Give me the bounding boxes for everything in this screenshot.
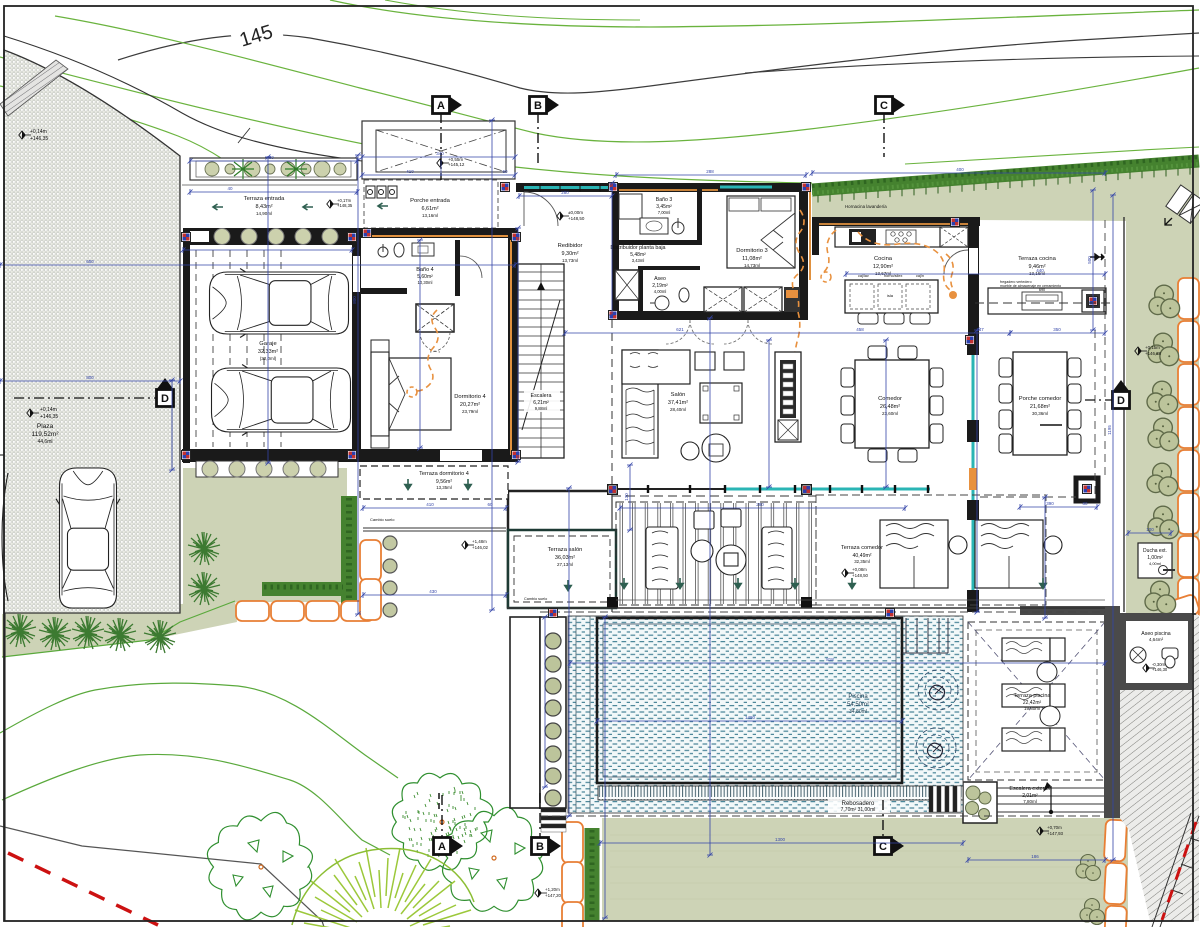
svg-text:818: 818 (826, 657, 834, 662)
svg-text:3,43ml: 3,43ml (632, 258, 645, 263)
svg-text:60: 60 (502, 169, 508, 174)
svg-text:430: 430 (429, 589, 437, 594)
svg-text:+147,20: +147,20 (545, 893, 562, 898)
svg-text:21,68m²: 21,68m² (1030, 404, 1050, 410)
svg-text:186: 186 (1031, 854, 1039, 859)
svg-text:Ducha ext.: Ducha ext. (1143, 548, 1167, 554)
svg-text:44,6ml: 44,6ml (37, 439, 52, 445)
svg-text:Cambio suelo: Cambio suelo (524, 597, 547, 601)
svg-text:400: 400 (956, 167, 964, 172)
svg-text:Porche comedor: Porche comedor (1019, 396, 1062, 402)
svg-text:32,35ml: 32,35ml (854, 559, 870, 564)
svg-text:Baño 4: Baño 4 (416, 267, 433, 273)
svg-text:80: 80 (1082, 501, 1088, 506)
svg-text:C: C (880, 100, 888, 112)
svg-text:A: A (437, 100, 445, 112)
svg-text:caj/n: caj/n (916, 274, 924, 278)
svg-text:B: B (536, 841, 544, 853)
svg-text:100: 100 (1146, 527, 1154, 532)
svg-text:20,27m²: 20,27m² (460, 402, 480, 408)
svg-text:621: 621 (676, 327, 684, 332)
svg-text:9,88ml: 9,88ml (535, 406, 548, 411)
svg-text:Salón: Salón (671, 392, 686, 398)
svg-text:13,73ml: 13,73ml (562, 258, 578, 263)
svg-text:mueble de almacenaje en cerram: mueble de almacenaje en cerramiento (1000, 284, 1061, 288)
svg-text:+145,12: +145,12 (448, 162, 465, 167)
svg-text:+1,48m: +1,48m (472, 539, 487, 544)
svg-text:4,00ml: 4,00ml (654, 289, 667, 294)
svg-text:36,03m²: 36,03m² (555, 555, 575, 561)
svg-text:+146,30: +146,30 (1152, 667, 1168, 672)
svg-text:1300: 1300 (775, 837, 786, 842)
svg-text:37,41m²: 37,41m² (668, 400, 688, 406)
svg-text:+146,35: +146,35 (40, 414, 58, 420)
svg-text:12,90m²: 12,90m² (873, 264, 893, 270)
svg-text:1480: 1480 (745, 715, 756, 720)
svg-text:458: 458 (856, 327, 864, 332)
svg-text:+146,35: +146,35 (30, 136, 48, 142)
svg-text:11,08m²: 11,08m² (742, 256, 762, 262)
svg-text:±0,00m: ±0,00m (568, 210, 583, 215)
svg-text:horno/silex: horno/silex (884, 274, 902, 278)
svg-text:119,52m²: 119,52m² (32, 431, 60, 438)
svg-text:D: D (1117, 395, 1125, 407)
svg-text:Cambio suelo: Cambio suelo (370, 517, 395, 522)
svg-text:390: 390 (1046, 501, 1054, 506)
svg-text:Terraza entrada: Terraza entrada (244, 196, 285, 202)
svg-text:D: D (161, 393, 169, 405)
svg-text:Redibidor: Redibidor (558, 243, 583, 249)
svg-text:+1,20m: +1,20m (545, 887, 560, 892)
svg-text:Terraza cocina: Terraza cocina (1018, 256, 1056, 262)
svg-text:Baño 3: Baño 3 (656, 197, 673, 203)
svg-text:440: 440 (1036, 268, 1044, 273)
svg-text:14,73ml: 14,73ml (744, 263, 760, 268)
svg-text:19,80ml: 19,80ml (1024, 706, 1040, 711)
svg-text:Dormitorio 4: Dormitorio 4 (454, 394, 486, 400)
svg-text:Terraza comedor: Terraza comedor (841, 545, 883, 551)
svg-text:+0,14m: +0,14m (40, 407, 57, 413)
svg-text:40: 40 (227, 186, 233, 191)
svg-text:Hornacina lavandería: Hornacina lavandería (845, 204, 887, 209)
svg-text:23,60ml: 23,60ml (882, 411, 898, 416)
svg-text:Cocina: Cocina (874, 256, 893, 262)
svg-text:Dormitorio 3: Dormitorio 3 (736, 248, 768, 254)
svg-text:280: 280 (561, 190, 569, 195)
svg-text:8,43m²: 8,43m² (255, 204, 272, 210)
svg-text:350: 350 (1053, 327, 1061, 332)
svg-text:+147,93: +147,93 (1047, 831, 1064, 836)
svg-text:Plaza: Plaza (37, 423, 54, 430)
svg-text:13,16ml: 13,16ml (422, 213, 438, 218)
svg-text:Aseo: Aseo (654, 276, 666, 282)
svg-text:+0,15m: +0,15m (1145, 345, 1160, 350)
svg-text:7,70m² 31,00ml: 7,70m² 31,00ml (841, 807, 876, 813)
svg-text:23,79ml: 23,79ml (462, 409, 478, 414)
svg-text:+148,50: +148,50 (852, 573, 869, 578)
svg-text:13,35ml: 13,35ml (436, 485, 452, 490)
svg-text:500: 500 (1087, 256, 1092, 264)
svg-text:6,61m²: 6,61m² (421, 206, 438, 212)
svg-text:340: 340 (436, 151, 444, 156)
svg-text:130: 130 (624, 493, 629, 501)
svg-text:30,36ml: 30,36ml (1032, 411, 1048, 416)
svg-text:Escalera: Escalera (531, 393, 552, 399)
svg-text:4,64m²: 4,64m² (1149, 637, 1164, 642)
svg-text:28,40ml: 28,40ml (670, 407, 686, 412)
svg-text:+148,50: +148,50 (568, 216, 585, 221)
svg-text:Comedor: Comedor (878, 396, 902, 402)
svg-text:410: 410 (426, 502, 434, 507)
svg-text:+0,70m: +0,70m (1047, 825, 1062, 830)
svg-text:Terraza piscina: Terraza piscina (1014, 693, 1052, 699)
svg-text:Porche entrada: Porche entrada (410, 198, 450, 204)
svg-text:4,00ml: 4,00ml (1149, 561, 1161, 566)
svg-text:Distribuidor planta baja: Distribuidor planta baja (610, 245, 665, 251)
svg-text:Terraza salón: Terraza salón (548, 547, 583, 553)
svg-text:14,90ml: 14,90ml (256, 211, 272, 216)
svg-text:54,50m²: 54,50m² (847, 702, 869, 708)
svg-text:7,00ml: 7,00ml (658, 210, 671, 215)
svg-text:26,48m²: 26,48m² (880, 404, 900, 410)
svg-text:280: 280 (756, 502, 764, 507)
svg-text:Piscina: Piscina (848, 694, 868, 700)
svg-text:34,80ml: 34,80ml (849, 709, 867, 715)
svg-text:410: 410 (406, 169, 414, 174)
svg-text:27,13ml: 27,13ml (557, 562, 573, 567)
svg-text:B: B (534, 100, 542, 112)
svg-text:+146,02: +146,02 (472, 545, 489, 550)
svg-text:690: 690 (1039, 288, 1045, 292)
svg-text:650: 650 (86, 259, 94, 264)
svg-text:+0,08m: +0,08m (852, 567, 867, 572)
svg-text:+0,14m: +0,14m (30, 129, 47, 135)
svg-text:Terraza dormitorio 4: Terraza dormitorio 4 (419, 471, 469, 477)
svg-text:+146,38: +146,38 (1145, 351, 1162, 356)
svg-text:800: 800 (352, 296, 357, 304)
svg-text:+148,35: +148,35 (337, 203, 353, 208)
svg-text:isla: isla (887, 293, 894, 298)
svg-text:7,80ml: 7,80ml (1023, 799, 1037, 804)
svg-text:A: A (438, 841, 446, 853)
svg-text:Escalera exterior: Escalera exterior (1009, 786, 1050, 792)
svg-text:1195: 1195 (1107, 425, 1112, 435)
svg-text:800: 800 (86, 375, 94, 380)
svg-text:caj/lav: caj/lav (858, 274, 869, 278)
svg-text:288: 288 (706, 169, 714, 174)
svg-text:9,30m²: 9,30m² (561, 251, 578, 257)
